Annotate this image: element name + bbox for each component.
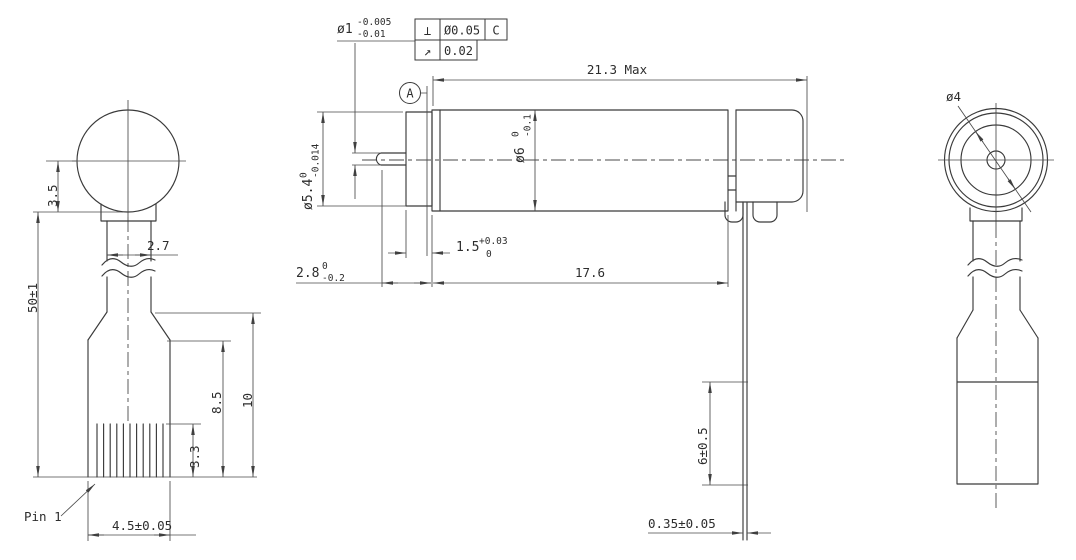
motor-body xyxy=(432,110,728,211)
datum-letter: A xyxy=(406,87,414,101)
dim-label: 2.7 xyxy=(147,238,170,253)
dim-label: 3.3 xyxy=(187,445,202,468)
tol-upper: 0 xyxy=(299,172,310,178)
tol-upper: 0 xyxy=(511,131,522,137)
dim-label: 50±1 xyxy=(25,283,40,313)
dim-value: ø5.4 xyxy=(301,179,316,210)
datum-a-flag: A xyxy=(400,83,428,257)
engineering-drawing-page: 50±1 3.5 2.7 8.5 10 xyxy=(0,0,1076,560)
tol-lower: -0.1 xyxy=(523,114,534,137)
break-line-bottom xyxy=(102,270,155,278)
dim-boss-length: 1.5 +0.03 0 xyxy=(388,210,508,287)
tol-upper: -0.005 xyxy=(357,17,391,28)
front-taper xyxy=(88,312,170,340)
end-band xyxy=(728,110,736,211)
dim-shaft-width: 2.7 xyxy=(107,238,178,255)
dim-label: 4.5±0.05 xyxy=(112,518,172,533)
tol-upper: +0.03 xyxy=(479,236,508,247)
tol-lower: -0.014 xyxy=(311,143,322,178)
pin1-label: Pin 1 xyxy=(24,509,62,524)
perpendicularity-symbol: ⊥ xyxy=(424,23,432,38)
dim-label: 6±0.5 xyxy=(695,427,710,465)
dim-ball-offset: 3.5 xyxy=(45,161,76,212)
dim-overall-height: 50±1 xyxy=(25,212,123,477)
end-taper xyxy=(957,310,1038,338)
dim-label: 3.5 xyxy=(45,184,60,207)
tol-lower: -0.2 xyxy=(322,273,345,284)
dim-terminal-thickness: 0.35±0.05 xyxy=(648,516,771,533)
end-cap xyxy=(736,110,803,202)
dim-pin-height: 3.3 xyxy=(166,424,202,477)
dim-body-dia: ø6 0 -0.1 xyxy=(511,110,536,211)
end-break-line-top xyxy=(968,259,1022,267)
tol-lower: 0 xyxy=(486,249,492,260)
fcf-tolerance: Ø0.05 xyxy=(444,24,480,38)
output-shaft xyxy=(376,153,406,165)
fcf-tolerance: 0.02 xyxy=(444,44,473,58)
pin1-callout: Pin 1 xyxy=(24,484,95,524)
dim-label: 21.3 Max xyxy=(587,62,648,77)
tol-lower: -0.01 xyxy=(357,29,386,40)
dim-body-width: 4.5±0.05 xyxy=(88,481,196,541)
tol-upper: 0 xyxy=(322,261,328,272)
front-body xyxy=(88,340,170,477)
dim-label: 10 xyxy=(240,393,255,408)
dim-terminal-length: 6±0.5 xyxy=(695,382,748,485)
dim-label: 17.6 xyxy=(575,265,605,280)
dim-shaft-protrusion: 2.8 0 -0.2 xyxy=(296,170,431,287)
end-break-line-bottom xyxy=(968,270,1022,278)
fcf-perpendicularity: ⊥ Ø0.05 C xyxy=(415,19,507,40)
dim-label: 0.35±0.05 xyxy=(648,516,716,531)
break-line-top xyxy=(102,259,155,267)
fcf-datum-ref: C xyxy=(492,24,499,38)
end-cap-tab-2 xyxy=(753,202,777,222)
callout-shaft-dia: ø1 -0.005 -0.01 xyxy=(337,17,415,199)
side-view: ø1 -0.005 -0.01 ⊥ Ø0.05 C ↗ 0.02 xyxy=(296,17,848,540)
dim-end-boss-dia: ø4 xyxy=(946,89,1031,212)
runout-symbol: ↗ xyxy=(424,44,432,59)
dim-value: ø1 xyxy=(337,22,353,37)
fcf-runout: ↗ 0.02 xyxy=(415,40,477,60)
bearing-boss xyxy=(406,112,432,206)
terminal-lead xyxy=(743,203,747,540)
end-shaft xyxy=(973,221,1020,310)
dim-overall-length: 21.3 Max xyxy=(433,62,807,212)
dim-value: 1.5 xyxy=(456,240,479,255)
front-view: 50±1 3.5 2.7 8.5 10 xyxy=(24,100,261,541)
dim-label: ø4 xyxy=(946,89,961,104)
motor-outline-drawing: 50±1 3.5 2.7 8.5 10 xyxy=(0,0,1076,560)
end-body xyxy=(957,338,1038,484)
end-view: ø4 xyxy=(938,89,1054,508)
dim-value: 2.8 xyxy=(296,266,319,281)
dim-value: ø6 xyxy=(513,147,528,163)
terminal-pins xyxy=(97,424,163,477)
dim-bottom-to-taper: 10 xyxy=(155,313,261,477)
dim-label: 8.5 xyxy=(209,391,224,414)
dim-boss-dia: ø5.4 0 -0.014 xyxy=(299,112,411,210)
